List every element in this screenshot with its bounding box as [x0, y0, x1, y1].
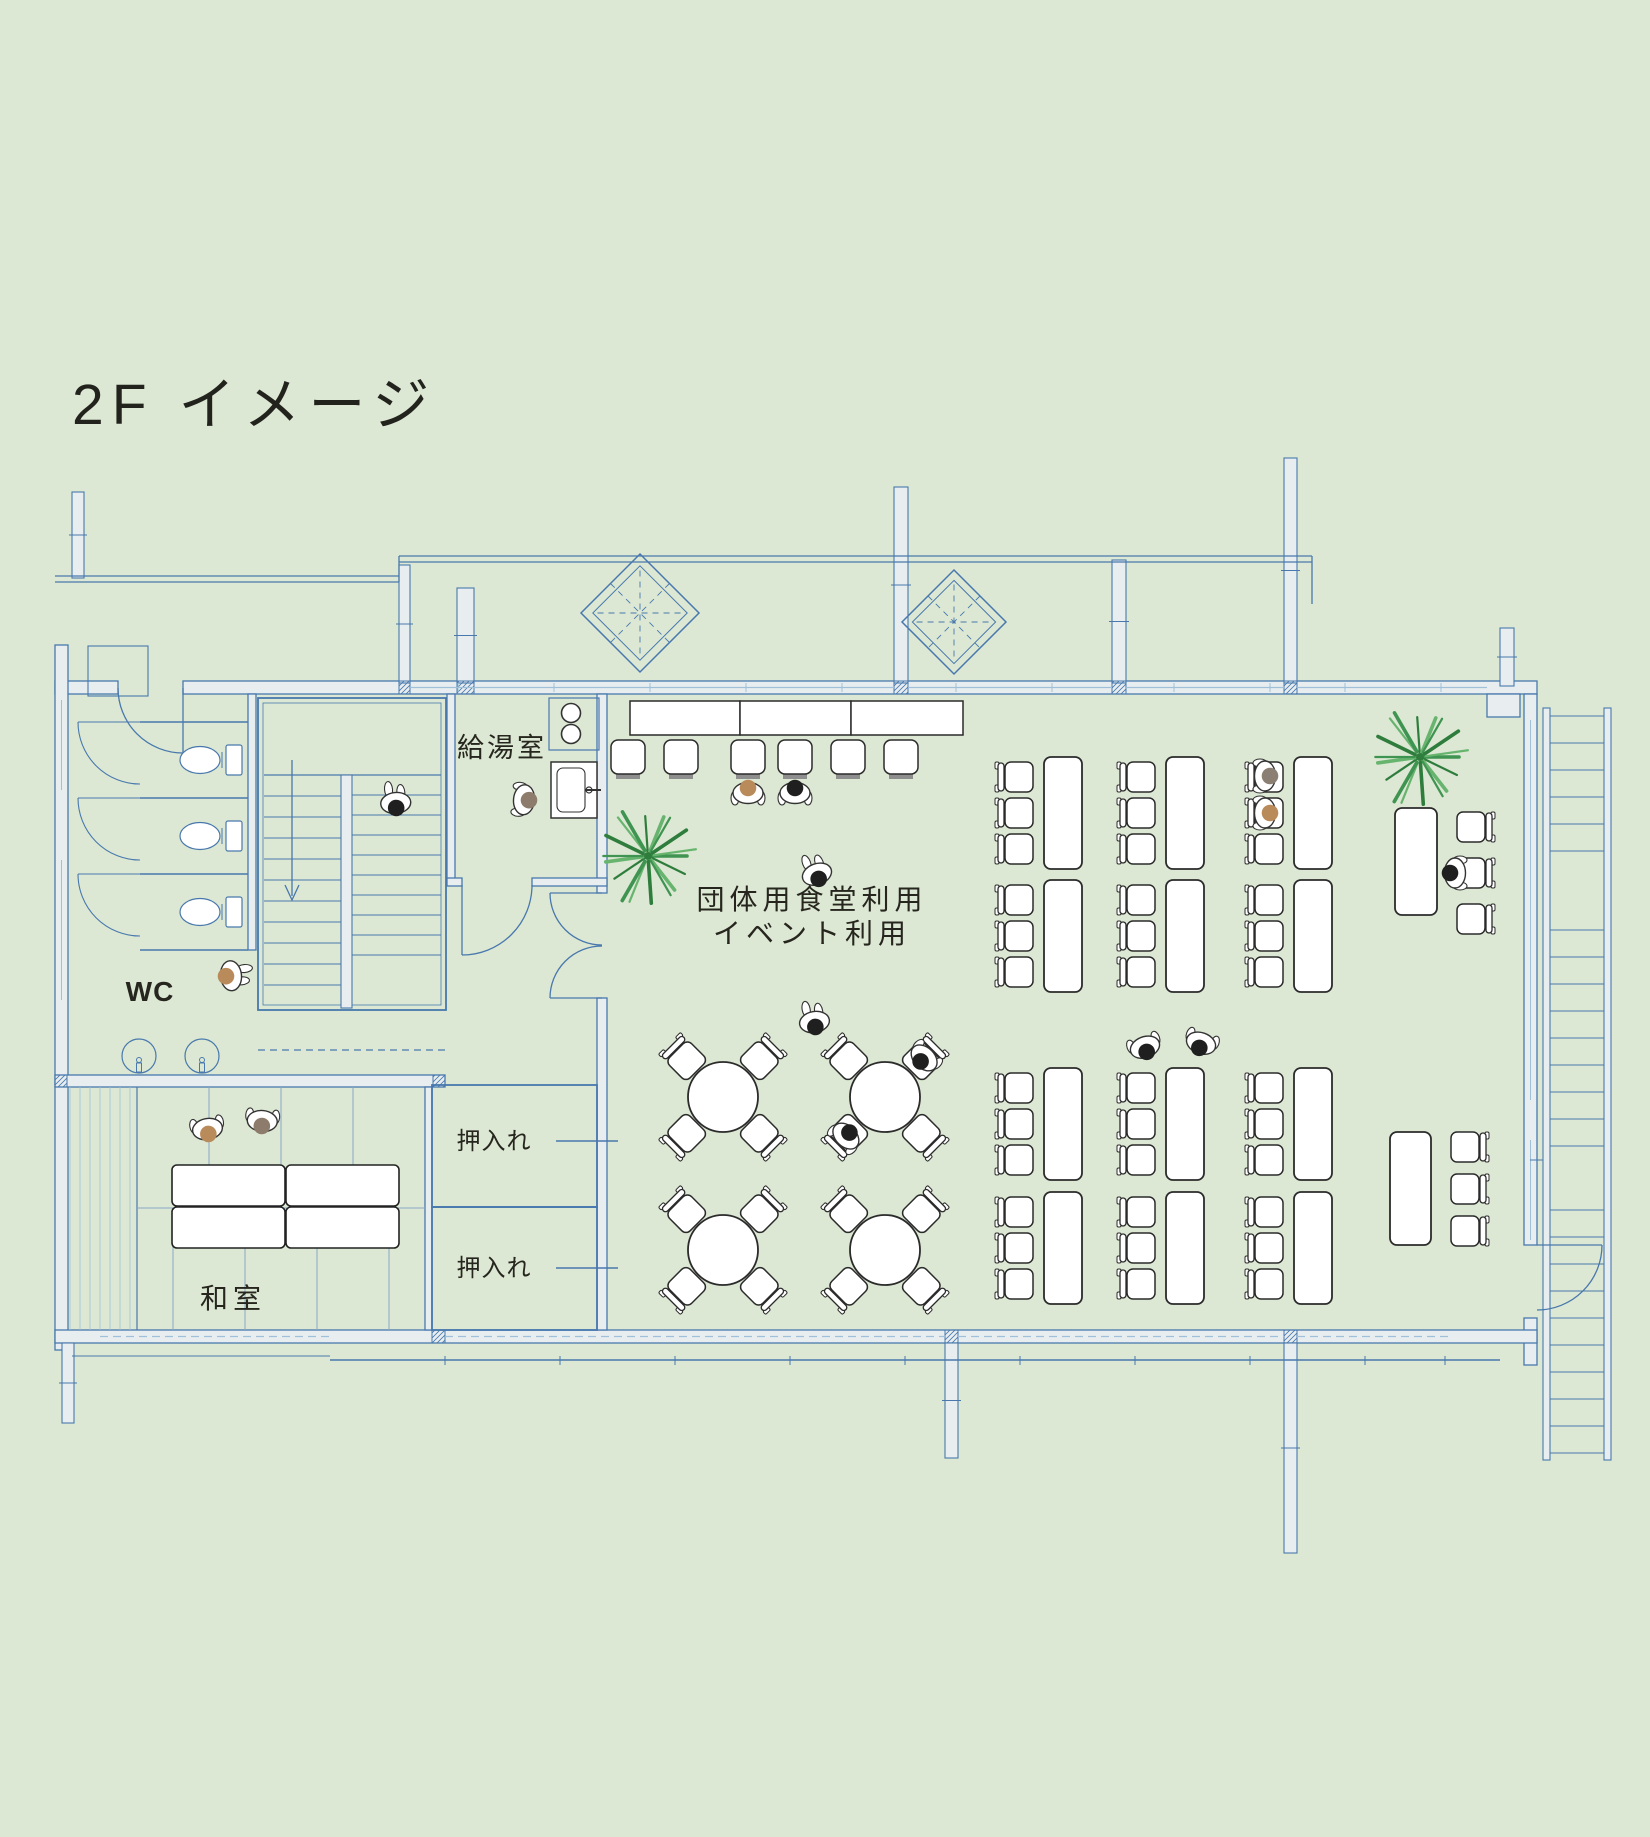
label-kitchenette: 給湯室 [457, 733, 547, 763]
label-closet-lower: 押入れ [457, 1255, 532, 1282]
label-wc: WC [126, 976, 175, 1007]
label-main-hall-line2: イベント利用 [713, 918, 911, 949]
page-title: 2F イメージ [72, 373, 437, 437]
walls-and-structure [55, 458, 1611, 1553]
label-main-hall-line1: 団体用食堂利用 [696, 884, 927, 915]
floor-plan-svg: 2F イメージ 給湯室 WC 押入れ 押入れ 和室 団体用食堂利用 イベント利用 [0, 0, 1650, 1837]
label-closet-upper: 押入れ [457, 1128, 532, 1155]
floor-plan-page: 2F イメージ 給湯室 WC 押入れ 押入れ 和室 団体用食堂利用 イベント利用 [0, 0, 1650, 1837]
label-japanese-room: 和室 [200, 1283, 266, 1314]
furniture [172, 701, 1495, 1315]
